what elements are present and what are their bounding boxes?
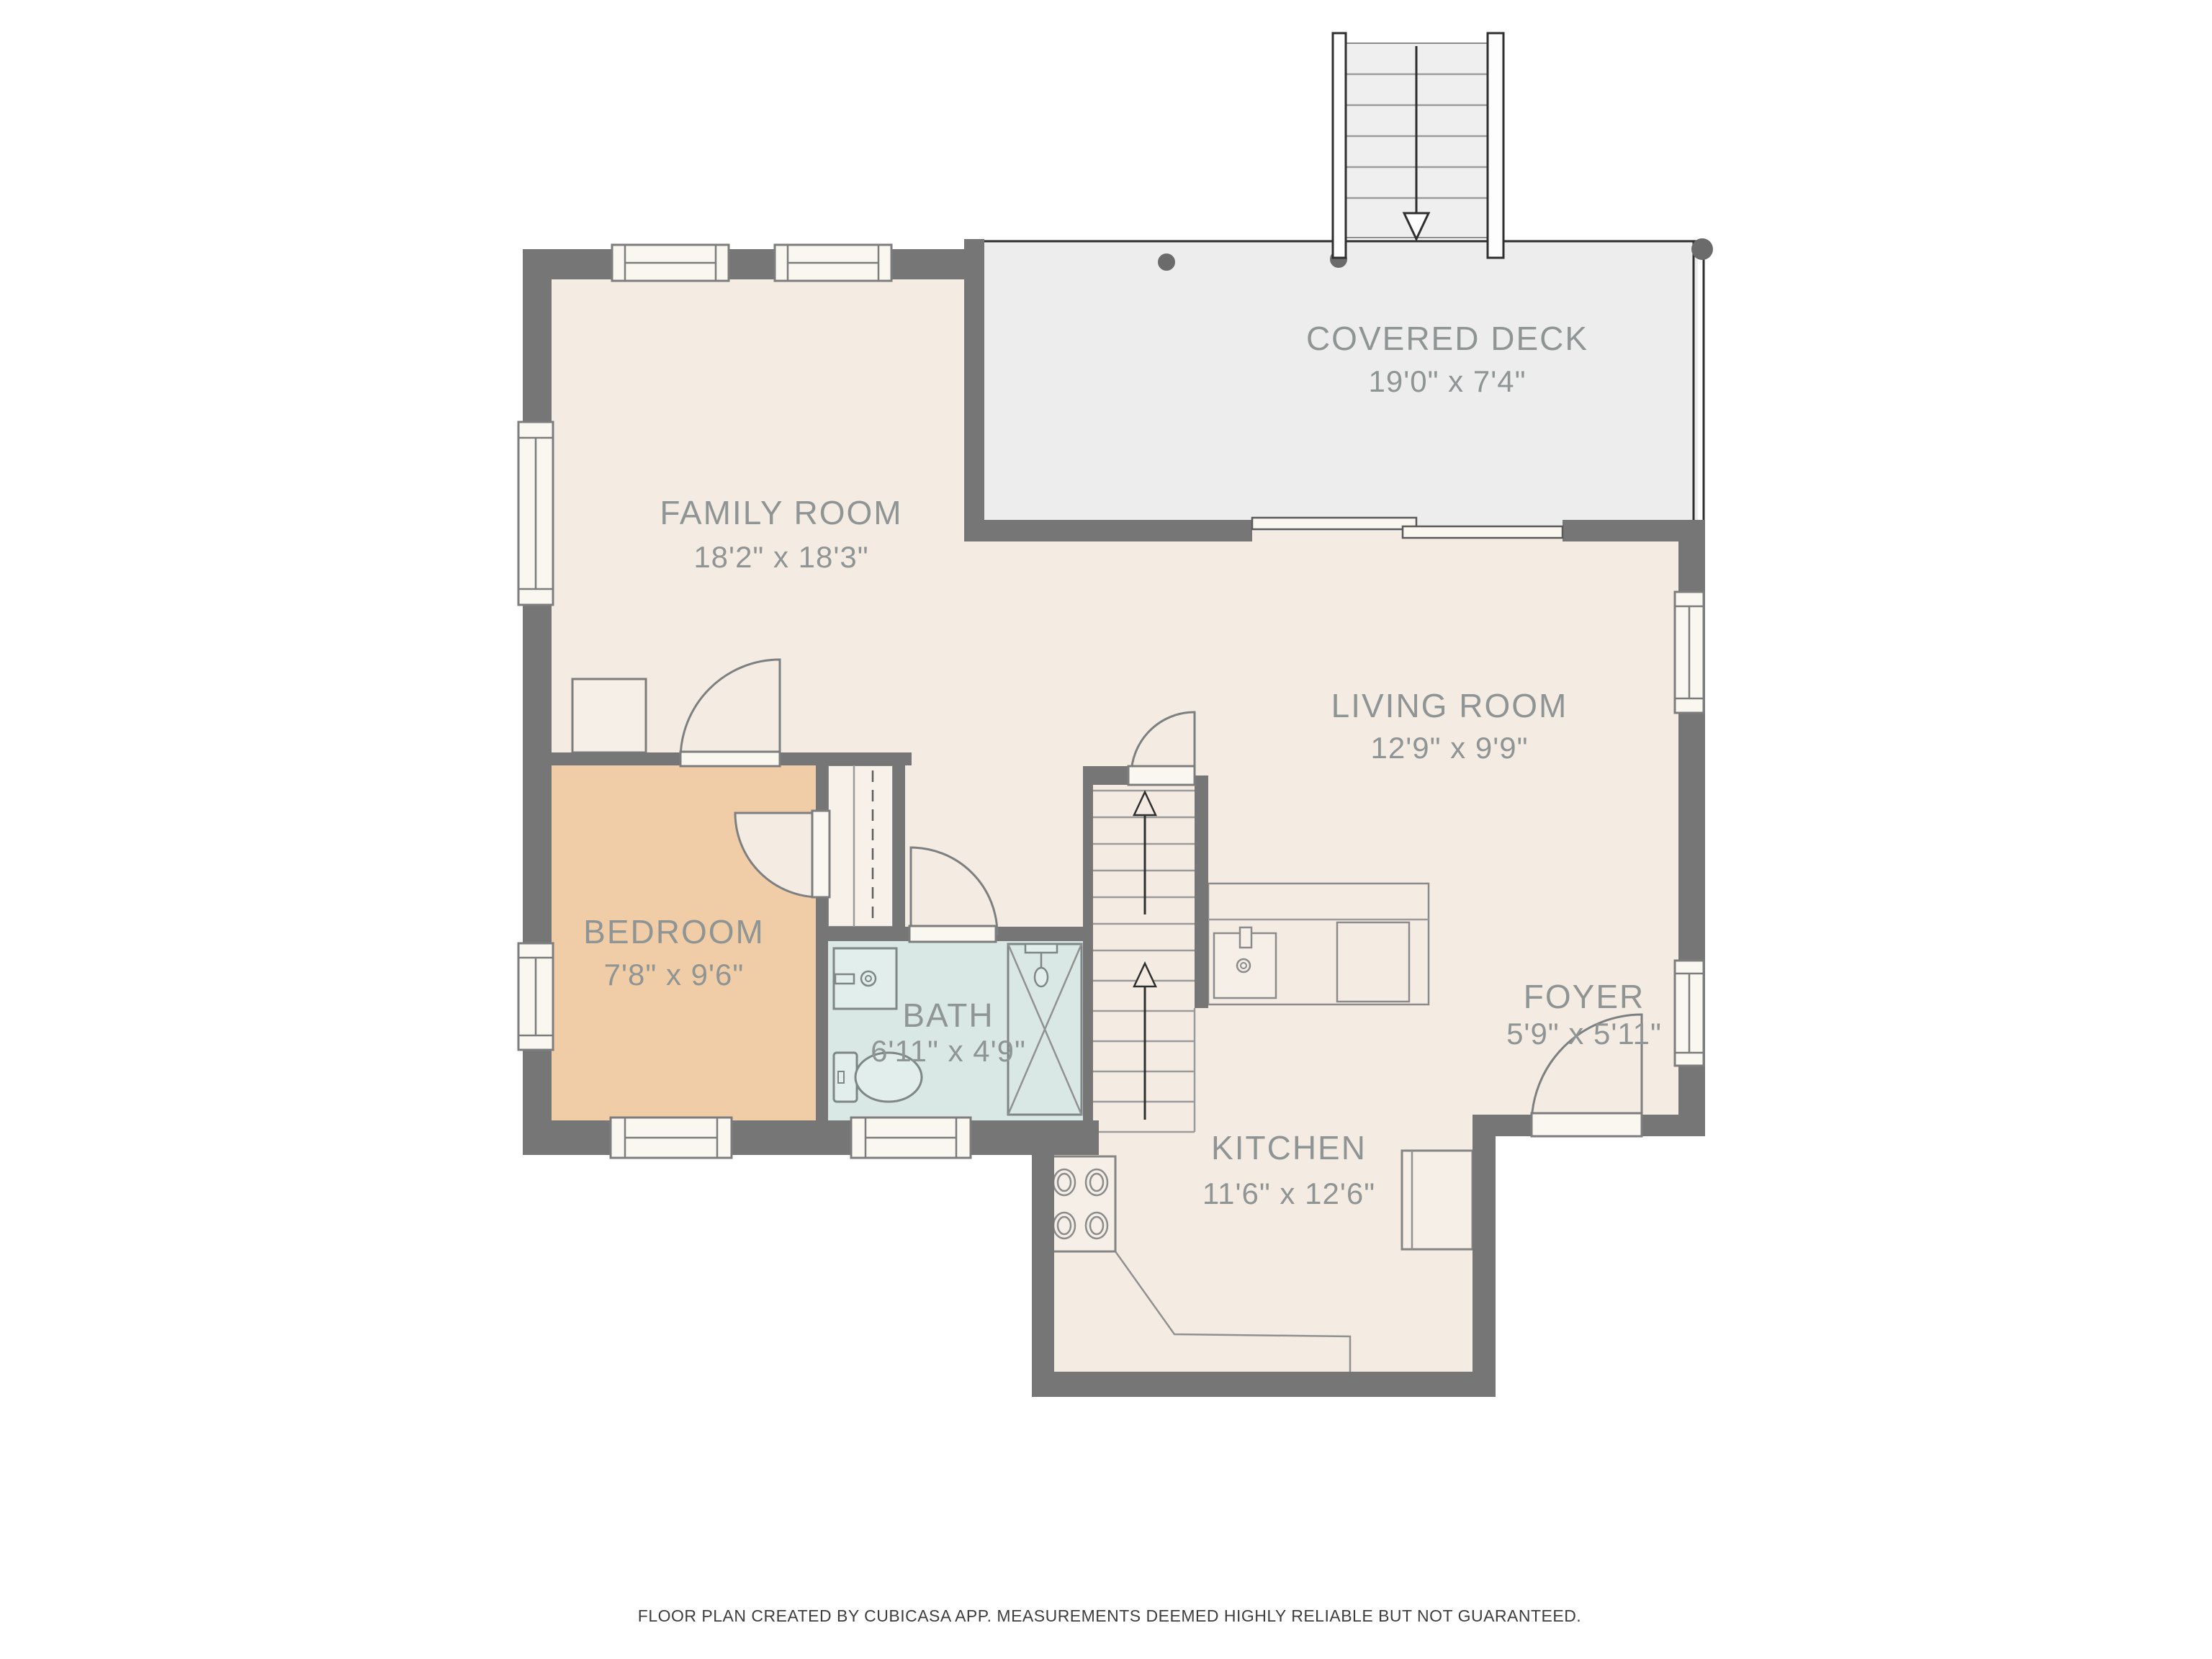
footer-disclaimer: FLOOR PLAN CREATED BY CUBICASA APP. MEAS… (638, 1606, 1581, 1625)
wall-closet-top (780, 752, 912, 765)
room-dims-foyer: 5'9" x 5'11" (1506, 1017, 1662, 1051)
window (1675, 592, 1704, 713)
shower-drop-icon (1035, 968, 1048, 986)
door-slab (680, 752, 780, 766)
family-room-cabinet (572, 679, 646, 752)
window (518, 422, 553, 605)
room-label-living-room: LIVING ROOM (1331, 687, 1568, 724)
kitchen-peninsula (1208, 884, 1429, 1004)
shower-head-icon (1025, 944, 1057, 953)
wall-family-deck (964, 239, 984, 541)
window (1675, 961, 1704, 1066)
wall-kitchen-bottom (1032, 1372, 1496, 1397)
window (775, 245, 891, 281)
door-slab (812, 811, 829, 897)
room-dims-bedroom: 7'8" x 9'6" (604, 958, 745, 992)
wall-bath-top (996, 927, 1083, 941)
wall-closet-right (893, 765, 905, 941)
room-dims-kitchen: 11'6" x 12'6" (1202, 1177, 1375, 1210)
wall-bedroom-top (523, 752, 680, 765)
covered-deck-area (984, 238, 1713, 541)
floor-plan-canvas: COVERED DECK 19'0" x 7'4" FAMILY ROOM 18… (0, 0, 2212, 1659)
wall-bedroom-right (816, 765, 828, 812)
door-slab (909, 926, 996, 942)
door-slab (1532, 1113, 1642, 1136)
sliding-door-panel (1403, 526, 1563, 538)
wall-stairs-left (1083, 775, 1093, 1120)
faucet-icon (1240, 927, 1251, 948)
wall-foyer-bottom (1642, 1115, 1705, 1136)
room-label-bath: BATH (902, 997, 994, 1034)
window (612, 245, 729, 281)
room-label-covered-deck: COVERED DECK (1306, 320, 1588, 357)
wall-kitchen-left (1032, 1148, 1054, 1397)
room-label-family-room: FAMILY ROOM (660, 494, 902, 531)
room-dims-living-room: 12'9" x 9'9" (1371, 731, 1529, 765)
room-label-kitchen: KITCHEN (1211, 1129, 1367, 1166)
exterior-staircase (1333, 33, 1503, 258)
stair-rail-right (1488, 33, 1503, 258)
room-dims-bath: 6'11" x 4'9" (871, 1034, 1026, 1068)
wall-stairs-top (1083, 766, 1128, 785)
closet-floor (828, 765, 893, 927)
window (611, 1118, 732, 1158)
wall-top (523, 249, 984, 279)
door-slab (1128, 766, 1195, 785)
wall-kitchen-right (1473, 1115, 1496, 1397)
wall-deck-bottom (964, 520, 1252, 541)
deck-post-icon (1158, 253, 1175, 271)
window (851, 1118, 971, 1158)
wall-bath-top (828, 927, 909, 941)
deck-floor (984, 240, 1698, 541)
stair-rail-left (1333, 33, 1346, 258)
stove (1046, 1156, 1115, 1251)
wall-bedroom-right (816, 895, 828, 1133)
window (518, 943, 553, 1050)
room-dims-covered-deck: 19'0" x 7'4" (1369, 364, 1527, 398)
wall-stairs-right (1195, 775, 1208, 1008)
sliding-door-panel (1252, 518, 1416, 529)
floor-plan-page: COVERED DECK 19'0" x 7'4" FAMILY ROOM 18… (0, 0, 2212, 1659)
room-label-foyer: FOYER (1524, 978, 1645, 1015)
toilet-tank (834, 1053, 857, 1102)
deck-post-icon (1691, 238, 1713, 260)
wall-bottom (523, 1120, 1099, 1155)
room-dims-family-room: 18'2" x 18'3" (693, 540, 868, 574)
room-label-bedroom: BEDROOM (583, 913, 765, 950)
